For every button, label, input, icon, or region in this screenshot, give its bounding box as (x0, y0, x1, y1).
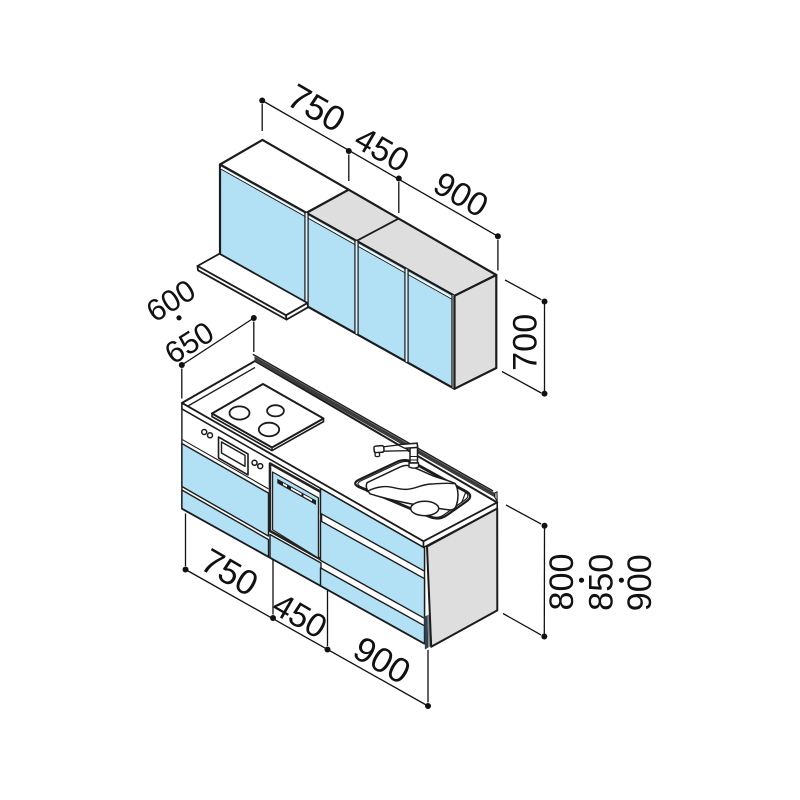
svg-text:800: 800 (543, 553, 581, 610)
svg-text:900: 900 (427, 165, 494, 225)
svg-text:700: 700 (507, 314, 545, 371)
svg-text:450: 450 (266, 587, 333, 647)
svg-text:650: 650 (159, 315, 220, 371)
svg-text:750: 750 (194, 541, 264, 604)
svg-text:900: 900 (347, 629, 417, 692)
svg-text:850: 850 (582, 554, 620, 611)
svg-text:750: 750 (281, 76, 352, 140)
svg-text:450: 450 (348, 120, 415, 180)
svg-text:900: 900 (621, 554, 659, 611)
